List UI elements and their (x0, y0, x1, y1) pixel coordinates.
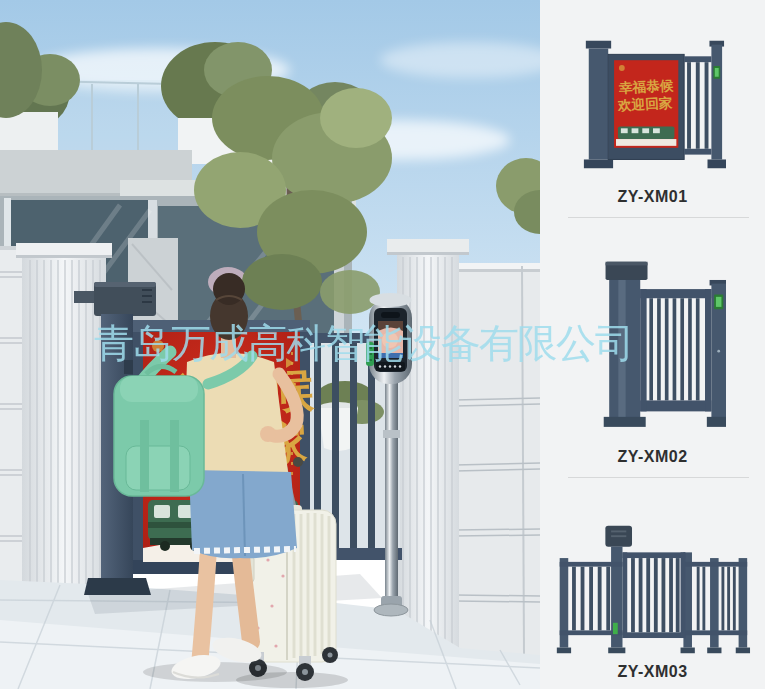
camera-slot (381, 312, 400, 318)
thumb-poster-line2: 欢迎回家 (617, 94, 675, 113)
right-leg (241, 556, 251, 642)
scene-svg: 幸福恭候 欢迎回家 (0, 0, 540, 689)
product-label-zy-xm01: ZY-XM01 (540, 188, 765, 206)
hair-bun (213, 273, 245, 305)
face-screen (378, 321, 403, 358)
product-label-zy-xm02: ZY-XM02 (540, 448, 765, 466)
thumb-poster-line1: 幸福恭候 (618, 77, 675, 96)
product-image-zy-xm01: 幸福恭候 欢迎回家 (580, 30, 726, 178)
divider (568, 217, 749, 218)
thumb3-green-mark (613, 623, 618, 634)
scene-photo: 幸福恭候 欢迎回家 (0, 0, 540, 689)
left-leg (200, 556, 208, 660)
product-image-zy-xm02 (580, 256, 726, 439)
hand (260, 426, 276, 442)
face-terminal (366, 293, 412, 384)
divider (568, 477, 749, 478)
product-panel: 幸福恭候 欢迎回家 ZY-XM01 (540, 0, 765, 689)
product-label-zy-xm03: ZY-XM03 (540, 663, 765, 681)
promo-image: 幸福恭候 欢迎回家 (0, 0, 765, 689)
product-image-zy-xm03 (552, 520, 752, 658)
perimeter-wall-right (455, 263, 540, 655)
